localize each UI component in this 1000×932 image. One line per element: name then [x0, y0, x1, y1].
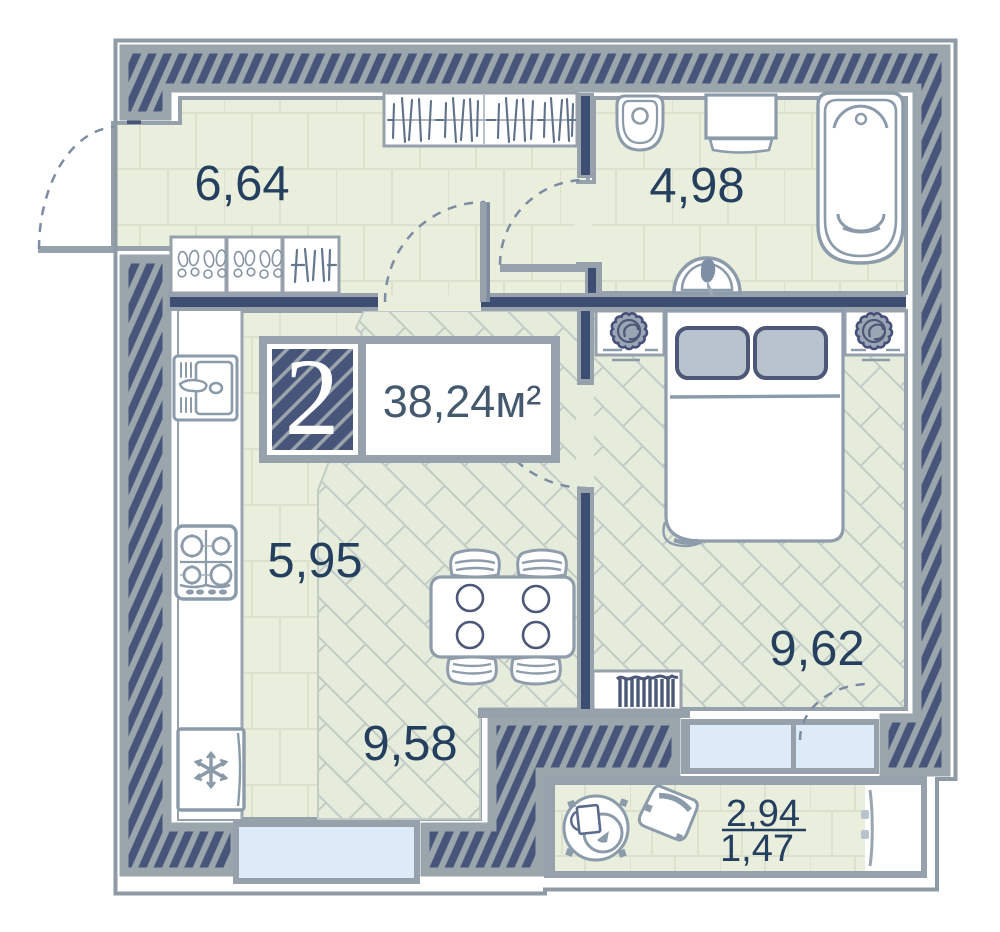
svg-text:5,95: 5,95 — [267, 534, 362, 588]
svg-text:9,62: 9,62 — [769, 622, 864, 676]
svg-text:2: 2 — [285, 336, 340, 458]
svg-text:9,58: 9,58 — [362, 717, 457, 771]
svg-text:1,47: 1,47 — [720, 828, 794, 870]
svg-text:6,64: 6,64 — [194, 157, 289, 211]
svg-text:4,98: 4,98 — [649, 159, 744, 213]
svg-text:38,24м²: 38,24м² — [383, 376, 542, 427]
